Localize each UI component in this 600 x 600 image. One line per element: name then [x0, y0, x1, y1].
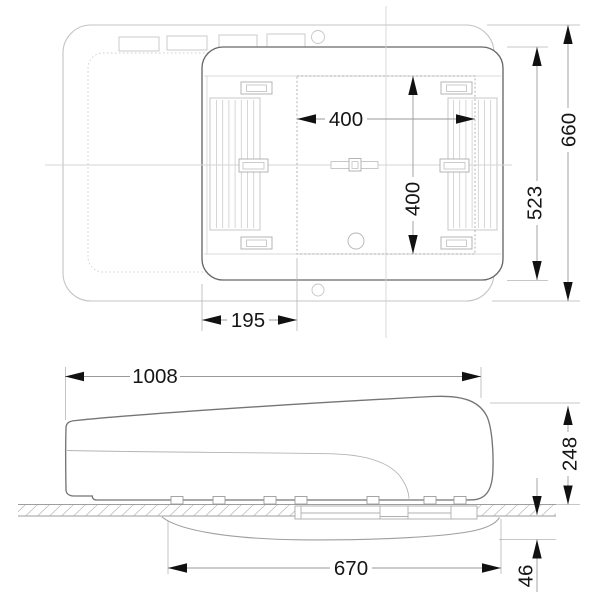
dim-label-height-above-roof: 248 [559, 437, 582, 471]
roof-cutout-section [295, 506, 477, 519]
top-view: 400 400 195 523 [45, 6, 581, 338]
interior-unit-profile [162, 517, 500, 540]
dim-interior-unit-length: 670 [168, 519, 501, 580]
dim-label-interior-unit-depth: 46 [515, 565, 538, 588]
unit-side-profile [66, 396, 493, 500]
technical-drawing-page: 400 400 195 523 [0, 0, 600, 600]
dim-label-opening-width: 400 [329, 108, 363, 131]
dim-height-above-roof: 248 [490, 403, 582, 505]
dim-label-interior-unit-length: 670 [334, 557, 368, 580]
dim-label-opening-length: 400 [402, 182, 425, 216]
cover-screw-bottom [312, 284, 324, 296]
dim-label-cover-width: 660 [558, 113, 581, 147]
side-view: 1008 248 670 46 [18, 365, 582, 592]
dim-label-overall-length: 1008 [132, 365, 178, 388]
dim-interior-unit-depth: 46 [499, 478, 556, 592]
dim-unit-body-width: 523 [507, 47, 548, 281]
dimension-drawing: 400 400 195 523 [0, 0, 600, 600]
dim-label-opening-offset: 195 [231, 309, 265, 332]
cover-screw-top [312, 31, 325, 44]
dim-label-unit-body-width: 523 [524, 186, 547, 220]
